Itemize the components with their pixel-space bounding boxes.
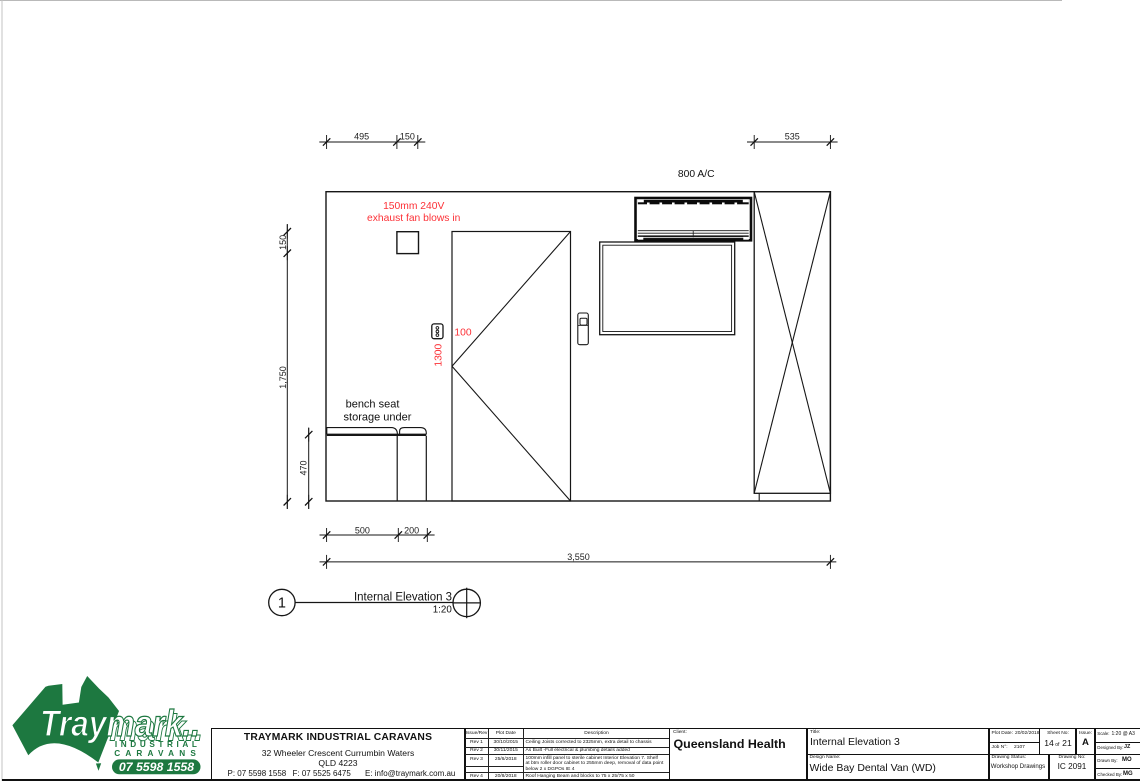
svg-text:495: 495	[354, 132, 369, 142]
svg-text:INDUSTRIAL: INDUSTRIAL	[115, 740, 201, 749]
svg-text:150: 150	[278, 235, 288, 250]
svg-text:07 5598 1558: 07 5598 1558	[119, 760, 194, 774]
svg-text:storage under: storage under	[344, 412, 412, 424]
svg-text:535: 535	[785, 132, 800, 142]
svg-text:Internal Elevation 3: Internal Elevation 3	[354, 590, 452, 604]
svg-text:1: 1	[278, 596, 286, 612]
svg-text:800 A/C: 800 A/C	[678, 169, 715, 180]
svg-text:exhaust fan blows in: exhaust fan blows in	[367, 213, 461, 224]
svg-text:bench seat: bench seat	[346, 398, 400, 410]
svg-text:150: 150	[400, 132, 415, 142]
svg-text:1300: 1300	[433, 343, 444, 366]
svg-text:3,550: 3,550	[567, 552, 590, 562]
svg-text:500: 500	[355, 525, 370, 535]
svg-text:1,750: 1,750	[278, 366, 288, 389]
svg-text:100: 100	[454, 327, 471, 338]
svg-text:470: 470	[299, 460, 309, 475]
svg-text:1:20: 1:20	[433, 604, 453, 615]
svg-text:150mm 240V: 150mm 240V	[383, 201, 444, 212]
svg-text:CARAVANS: CARAVANS	[114, 749, 201, 758]
svg-text:200: 200	[404, 525, 419, 535]
svg-text:Traymark..: Traymark..	[40, 703, 200, 744]
